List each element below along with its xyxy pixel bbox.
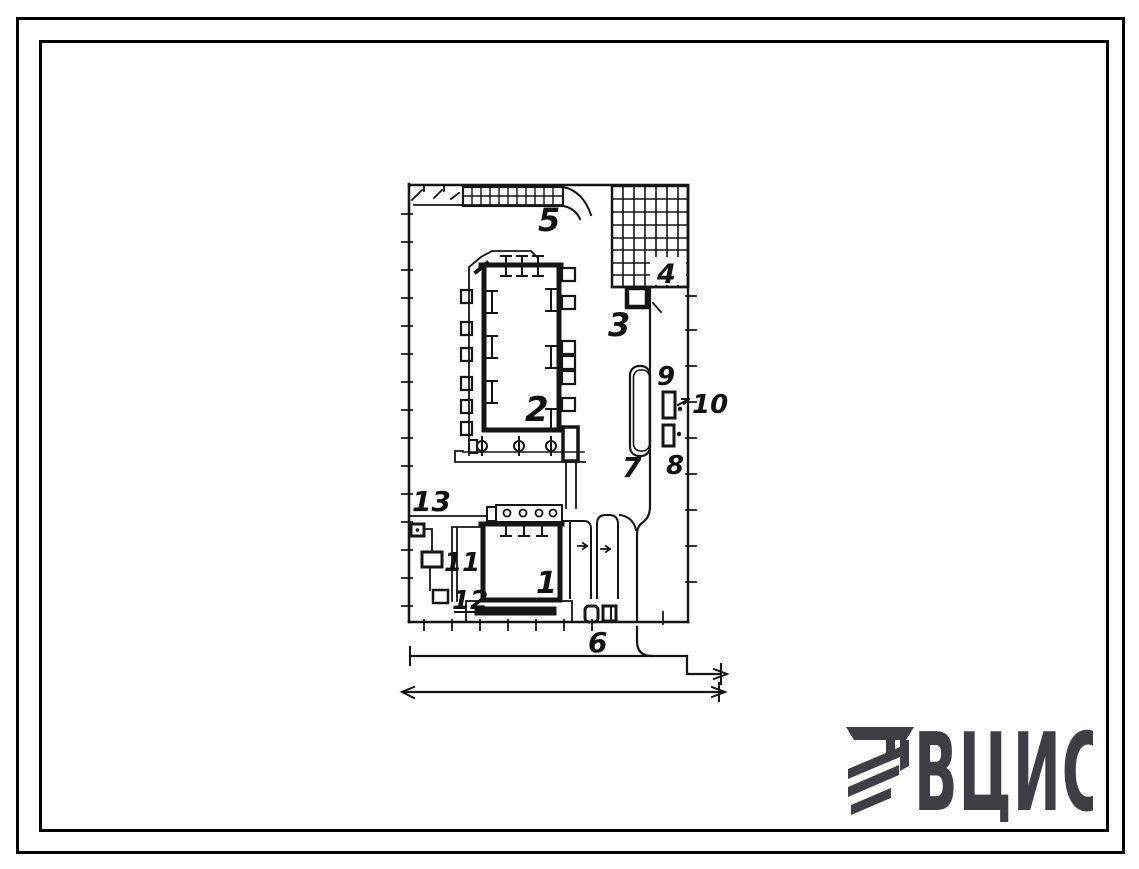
building-1 — [409, 505, 572, 622]
plan-label-12: 12 — [452, 586, 488, 616]
grid-pavement-area — [612, 186, 688, 287]
plan-label-10: 10 — [692, 390, 728, 420]
vcis-logo-emblem — [846, 727, 914, 815]
plan-label-6: 6 — [588, 626, 607, 659]
plan-label-7: 7 — [622, 451, 642, 484]
plan-label-5: 5 — [538, 201, 560, 239]
parking-strips — [562, 515, 636, 598]
plan-label-9: 9 — [657, 362, 675, 392]
plan-label-4: 4 — [656, 259, 676, 290]
scanned-drawing-sheet: 1 2 3 4 5 6 7 8 9 10 11 12 13 ВЦИС — [0, 0, 1139, 869]
vcis-logo: ВЦИС — [838, 712, 1093, 822]
marker-13 — [411, 524, 432, 552]
plan-label-13: 13 — [412, 485, 451, 518]
shelter-7 — [630, 366, 650, 456]
plan-label-1: 1 — [536, 566, 557, 601]
vcis-logo-text: ВЦИС — [914, 712, 1093, 822]
gate-box — [627, 288, 647, 307]
plan-label-8: 8 — [666, 451, 684, 481]
plan-label-11: 11 — [444, 548, 480, 578]
crosswalk-strip — [463, 187, 591, 219]
plan-label-3: 3 — [608, 306, 630, 344]
plan-label-2: 2 — [525, 390, 549, 430]
building-2 — [455, 251, 585, 508]
site-plan-drawing: 1 2 3 4 5 6 7 8 9 10 11 12 13 — [395, 165, 755, 725]
marker-6 — [585, 606, 616, 622]
